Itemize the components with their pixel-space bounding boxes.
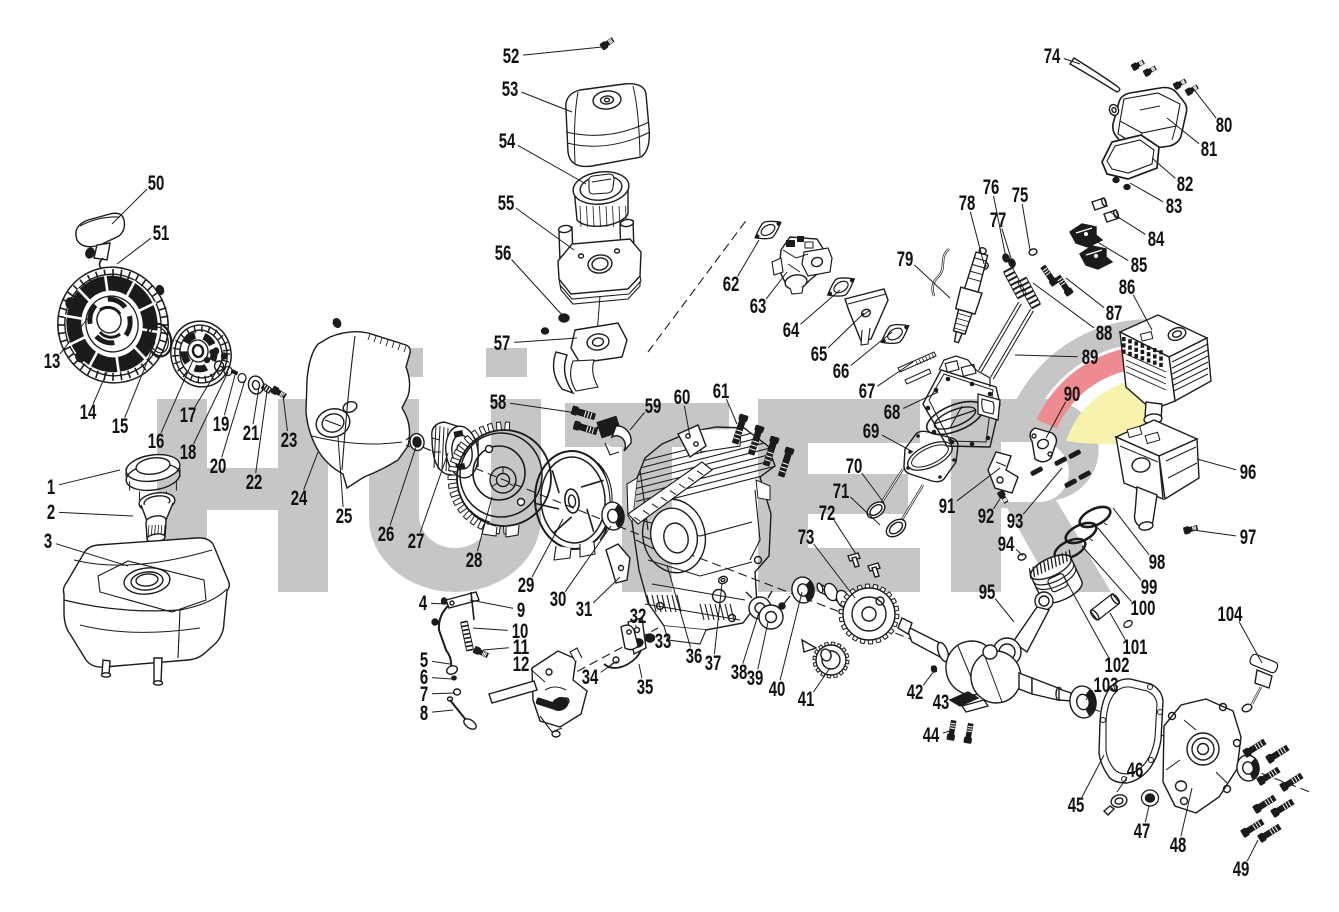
svg-text:36: 36 xyxy=(686,645,703,668)
svg-text:20: 20 xyxy=(210,455,227,478)
svg-text:90: 90 xyxy=(1064,383,1081,406)
svg-text:18: 18 xyxy=(180,441,197,464)
svg-text:35: 35 xyxy=(637,676,654,699)
svg-text:37: 37 xyxy=(705,652,722,675)
svg-text:24: 24 xyxy=(291,487,308,510)
svg-text:100: 100 xyxy=(1131,597,1156,620)
svg-text:64: 64 xyxy=(783,319,800,342)
svg-text:53: 53 xyxy=(502,78,519,101)
svg-text:12: 12 xyxy=(513,653,530,676)
svg-text:30: 30 xyxy=(550,588,567,611)
svg-text:99: 99 xyxy=(1141,576,1158,599)
svg-text:103: 103 xyxy=(1094,674,1119,697)
svg-text:65: 65 xyxy=(811,343,828,366)
svg-text:98: 98 xyxy=(1149,551,1166,574)
svg-text:21: 21 xyxy=(243,422,260,445)
svg-text:66: 66 xyxy=(833,360,850,383)
svg-text:55: 55 xyxy=(498,192,515,215)
svg-text:22: 22 xyxy=(246,471,263,494)
svg-text:88: 88 xyxy=(1096,322,1113,345)
svg-text:28: 28 xyxy=(466,549,483,572)
svg-text:45: 45 xyxy=(1068,794,1085,817)
svg-text:81: 81 xyxy=(1201,138,1218,161)
svg-text:42: 42 xyxy=(907,681,924,704)
svg-text:60: 60 xyxy=(674,386,691,409)
svg-text:85: 85 xyxy=(1131,254,1148,277)
svg-text:93: 93 xyxy=(1007,510,1024,533)
svg-text:80: 80 xyxy=(1216,114,1233,137)
svg-text:29: 29 xyxy=(518,574,535,597)
svg-text:50: 50 xyxy=(148,172,165,195)
svg-text:31: 31 xyxy=(576,598,593,621)
svg-text:67: 67 xyxy=(859,380,876,403)
svg-text:58: 58 xyxy=(490,391,507,414)
svg-text:4: 4 xyxy=(419,592,428,615)
svg-text:27: 27 xyxy=(408,530,425,553)
svg-text:76: 76 xyxy=(983,176,1000,199)
svg-text:13: 13 xyxy=(44,350,61,373)
svg-text:39: 39 xyxy=(747,667,764,690)
svg-text:97: 97 xyxy=(1240,526,1257,549)
svg-text:75: 75 xyxy=(1012,184,1029,207)
svg-text:79: 79 xyxy=(897,248,914,271)
svg-text:51: 51 xyxy=(153,222,170,245)
svg-text:43: 43 xyxy=(933,691,950,714)
svg-text:2: 2 xyxy=(47,501,55,524)
svg-text:23: 23 xyxy=(281,429,298,452)
svg-text:34: 34 xyxy=(582,666,599,689)
svg-text:72: 72 xyxy=(819,502,836,525)
svg-text:41: 41 xyxy=(798,688,815,711)
svg-text:96: 96 xyxy=(1240,461,1257,484)
svg-text:40: 40 xyxy=(769,678,786,701)
svg-text:1: 1 xyxy=(47,476,56,499)
svg-text:15: 15 xyxy=(112,415,129,438)
svg-text:70: 70 xyxy=(846,455,863,478)
svg-text:16: 16 xyxy=(148,430,165,453)
svg-text:83: 83 xyxy=(1166,195,1183,218)
svg-text:68: 68 xyxy=(884,401,901,424)
svg-text:17: 17 xyxy=(180,404,197,427)
svg-text:77: 77 xyxy=(990,209,1007,232)
svg-text:47: 47 xyxy=(1134,820,1151,843)
svg-text:63: 63 xyxy=(750,295,767,318)
svg-text:52: 52 xyxy=(503,45,520,68)
svg-text:59: 59 xyxy=(645,395,662,418)
svg-text:19: 19 xyxy=(213,413,230,436)
svg-text:69: 69 xyxy=(863,420,880,443)
svg-text:78: 78 xyxy=(959,192,976,215)
svg-text:73: 73 xyxy=(798,526,815,549)
svg-text:74: 74 xyxy=(1044,45,1061,68)
svg-text:38: 38 xyxy=(731,661,748,684)
svg-text:26: 26 xyxy=(378,523,395,546)
svg-text:8: 8 xyxy=(420,702,429,725)
svg-text:44: 44 xyxy=(923,724,940,747)
svg-text:14: 14 xyxy=(80,401,97,424)
svg-text:71: 71 xyxy=(833,480,850,503)
svg-text:56: 56 xyxy=(495,242,512,265)
svg-text:62: 62 xyxy=(723,273,740,296)
svg-text:3: 3 xyxy=(44,530,52,553)
svg-text:89: 89 xyxy=(1082,346,1099,369)
svg-text:91: 91 xyxy=(939,495,956,518)
svg-text:95: 95 xyxy=(979,581,996,604)
svg-text:49: 49 xyxy=(1233,858,1250,881)
svg-text:92: 92 xyxy=(978,505,995,528)
svg-text:48: 48 xyxy=(1170,834,1187,857)
svg-text:46: 46 xyxy=(1127,759,1144,782)
svg-text:9: 9 xyxy=(517,599,525,622)
svg-text:104: 104 xyxy=(1218,603,1243,626)
svg-text:94: 94 xyxy=(998,533,1015,556)
svg-text:32: 32 xyxy=(630,605,647,628)
svg-text:86: 86 xyxy=(1119,276,1136,299)
svg-text:57: 57 xyxy=(494,332,511,355)
svg-text:54: 54 xyxy=(499,130,516,153)
svg-text:82: 82 xyxy=(1177,173,1194,196)
svg-text:33: 33 xyxy=(655,630,672,653)
svg-text:25: 25 xyxy=(336,505,353,528)
svg-text:84: 84 xyxy=(1148,228,1165,251)
